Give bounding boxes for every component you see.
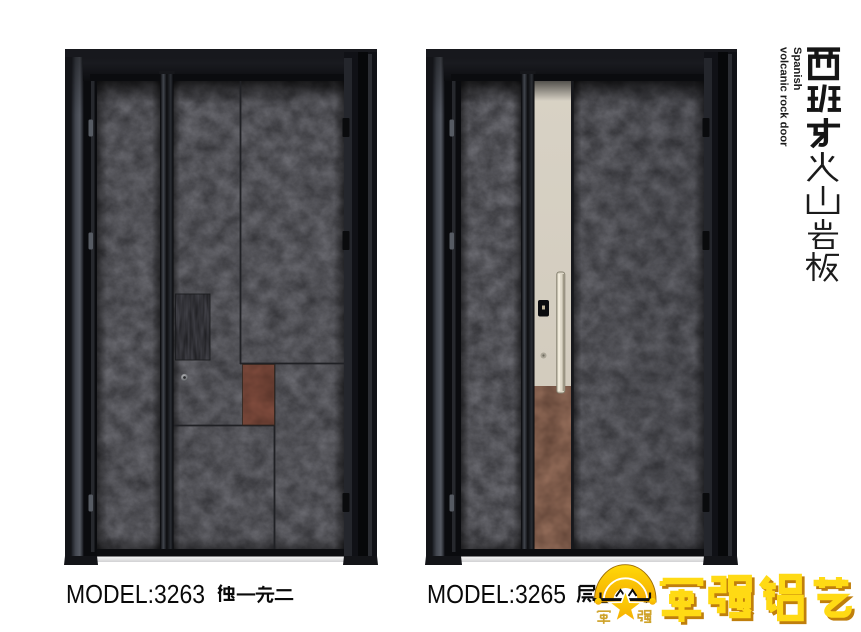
svg-text:MODEL:3265: MODEL:3265 [427,579,566,609]
svg-text:volcanic rock door: volcanic rock door [778,47,790,147]
svg-text:MODEL:3263: MODEL:3263 [66,579,205,609]
svg-text:Spanish: Spanish [791,47,803,91]
